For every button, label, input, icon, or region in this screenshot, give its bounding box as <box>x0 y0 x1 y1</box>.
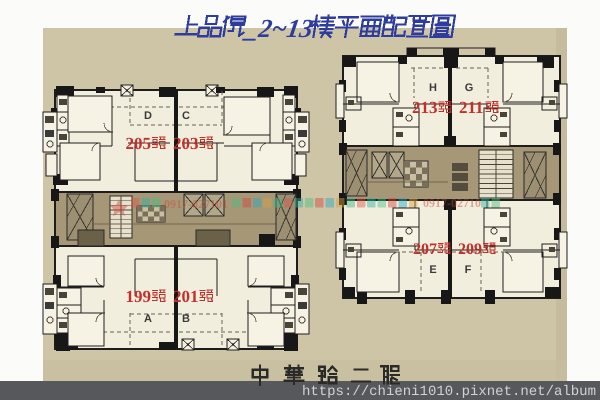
svg-text:F: F <box>465 264 472 276</box>
svg-text:G: G <box>465 82 474 94</box>
svg-text:_2~13: _2~13 <box>242 14 315 43</box>
svg-text:201: 201 <box>173 287 199 306</box>
svg-text:0917-027101: 0917-027101 <box>423 196 487 210</box>
svg-text:B: B <box>182 313 190 325</box>
svg-text:209: 209 <box>458 241 482 258</box>
svg-text:E: E <box>429 264 436 276</box>
svg-text:C: C <box>182 110 190 122</box>
svg-text:199: 199 <box>126 287 152 306</box>
svg-text:https://chieni1010.pixnet.net/: https://chieni1010.pixnet.net/album <box>302 384 596 400</box>
svg-text:A: A <box>144 313 152 325</box>
svg-text:0917-027101: 0917-027101 <box>164 197 228 211</box>
svg-text:207: 207 <box>413 241 437 258</box>
svg-text:H: H <box>429 82 437 94</box>
svg-text:D: D <box>144 110 152 122</box>
svg-text:205: 205 <box>126 134 152 153</box>
svg-text:203: 203 <box>173 134 199 153</box>
svg-text:213: 213 <box>412 98 438 117</box>
svg-text:211: 211 <box>459 98 484 117</box>
